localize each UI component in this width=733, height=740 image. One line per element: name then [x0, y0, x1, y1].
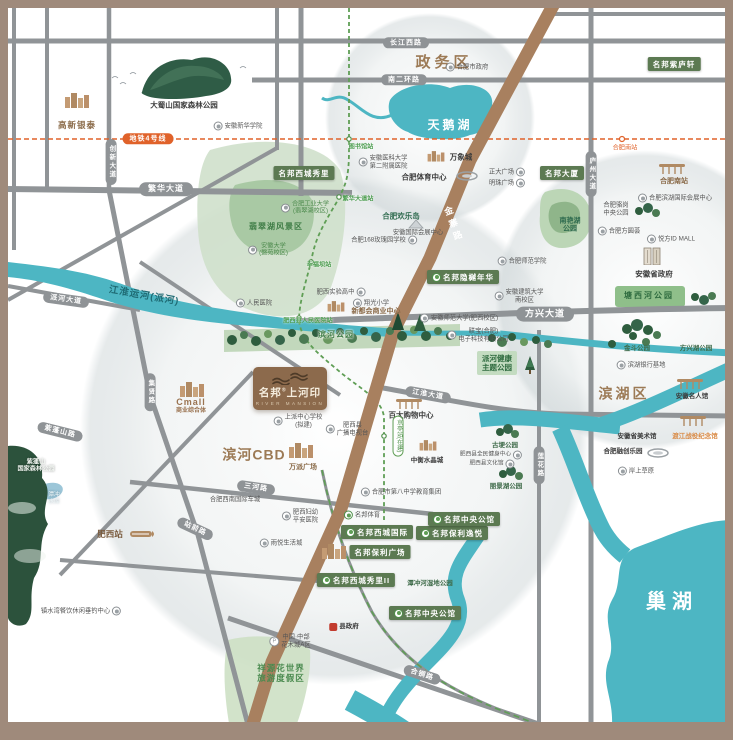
- mingbang-yinyue-nianhua-label: 名邦隐樾年华: [427, 270, 499, 284]
- mixc-icon: [427, 150, 445, 161]
- m-icon: [346, 528, 355, 537]
- chaohu-lake-label: 巢湖: [646, 590, 698, 614]
- p-icon: [446, 63, 455, 72]
- p-icon: [214, 122, 223, 131]
- hfut-label: 合肥工业大学(翡翠湖校区): [281, 201, 329, 216]
- m-icon: [433, 515, 442, 524]
- lianbao-lenovo-label: 联宝(合肥)电子科技有限公司: [447, 327, 508, 342]
- mingbang-mansion-label: 名邦大厦: [540, 166, 584, 180]
- m-icon: [344, 511, 353, 520]
- health-park-tree-icon: [524, 356, 536, 374]
- mingbang-xicheng-intl-label: 名邦西城国际: [341, 525, 413, 539]
- feixi-tv-station-label: 肥西县广播电视台: [326, 421, 368, 436]
- anhui-art-museum-label: 安徽省美术馆: [618, 433, 657, 441]
- p-icon: [420, 314, 429, 323]
- m-icon: [394, 609, 403, 618]
- tanchong-wetland-park-label: 潭冲河湿地公园: [407, 580, 453, 588]
- hefei-sports-center-label: 合肥体育中心: [402, 173, 447, 182]
- p-icon: [498, 257, 507, 266]
- fanhua-avenue-station-label: 繁华大道站: [343, 195, 374, 202]
- crystal-city-towers-icon: [419, 439, 437, 450]
- p-icon: [506, 460, 515, 469]
- project-name-en: RIVER MANSION: [256, 401, 325, 406]
- feicui-lake-scenic-label: 翡翠湖风景区: [249, 222, 303, 232]
- p-icon: [326, 425, 335, 434]
- luogang-central-park-label: 合肥骆岗中央公园: [603, 201, 628, 216]
- anhui-normal-univ-label: 安徽师范大学(肥西校区): [420, 314, 498, 323]
- p-icon: [236, 299, 245, 308]
- hetong-road-pill: 合铜路: [402, 664, 442, 687]
- mingzhu-plaza-label: 明珠广场: [489, 179, 525, 188]
- p-icon: [647, 235, 656, 244]
- paihe-health-park-label: 派河健康主题公园: [477, 351, 517, 375]
- anshang-caoyuan-label: 岸上草原: [618, 467, 654, 476]
- p-icon: [260, 539, 269, 548]
- celebrity-hall-pavilion-icon: [676, 378, 704, 390]
- xiangyuan-flower-world-label: 祥源花世界旅游度假区: [257, 663, 305, 683]
- p-icon: [112, 607, 121, 616]
- swan-lake-label: 天鹅湖: [427, 118, 472, 132]
- zhenshuiwan-label: 镇水湾餐饮休闲垂钓中心: [41, 607, 121, 616]
- china-flower-city-label: 中国·中部花木城A区: [269, 633, 310, 648]
- p-icon: [516, 179, 525, 188]
- xingfuba-station-label: 幸福坝站: [307, 261, 332, 268]
- hefei-168-rose-school-label: 合肥168玫瑰园学校: [351, 236, 417, 245]
- labels-layer: 高新银泰大蜀山国家森林公园安徽新华学院地铁4号线繁华大道创新大道名邦西城秀里长江…: [0, 0, 733, 740]
- binhu-bank-base-label: 滨湖银行基地: [617, 361, 666, 370]
- wanpai-buildings-icon: [288, 442, 314, 458]
- nanyanhu-park-label: 南艳湖公园: [560, 218, 581, 235]
- cmall-buildings-icon: [179, 381, 205, 397]
- idmall-label: 悦方ID MALL: [647, 235, 695, 244]
- hefei-south-railway-icon: [658, 163, 686, 175]
- dashushan-forest-label: 大蜀山国家森林公园: [150, 101, 218, 110]
- xinduhui-commercial-label: 新都会商业中心: [352, 308, 401, 316]
- cmall-label: Cmall商业综合体: [176, 397, 206, 415]
- p-icon: [274, 417, 283, 426]
- luzhou-avenue-pill: 庐州大道: [586, 151, 597, 197]
- fangxinghu-park-label: 方兴湖公园: [680, 345, 713, 353]
- tanchong-reservoir-label: 潭冲水库: [48, 492, 60, 506]
- dujiang-memorial-label: 渡江战役纪念馆: [672, 433, 718, 441]
- jindou-park-label: 金斗公园: [624, 345, 650, 353]
- anhui-gov-building-icon: [642, 247, 662, 265]
- xiangguang-primary-label: 翔光小学: [353, 299, 389, 308]
- wanpai-plaza-label: 万派广场: [289, 464, 317, 472]
- lijinghu-park-label: 丽景湖公园: [490, 483, 523, 491]
- p-icon: [447, 331, 456, 340]
- feixi-culture-hall-label: 肥西县文化馆: [469, 460, 514, 469]
- expo-tent-icon: [408, 219, 424, 229]
- feixi-fitness-center-label: 肥西县全民健身中心: [460, 451, 522, 460]
- jinzhai-road-label: 金寨路: [441, 205, 464, 245]
- tangxihe-park-label: 塘西河公园: [624, 291, 674, 301]
- hefei-city-gov-label: 合肥市政府: [446, 63, 488, 72]
- mingbang-sports-label: 名邦体育: [344, 511, 380, 520]
- hefei-normal-college-label: 合肥师范学院: [498, 257, 547, 266]
- baoli-plaza-buildings-icon: [321, 543, 347, 559]
- anhui-xinhua-college-label: 安徽新华学院: [214, 122, 263, 131]
- p-icon: [408, 236, 417, 245]
- feixi-experimental-hs-label: 肥西实验高中: [317, 288, 366, 297]
- gaoxin-intime-icon: [64, 92, 90, 108]
- gugeng-park-label: 古埂公园: [492, 442, 518, 450]
- p-icon: [282, 512, 291, 521]
- zhanqian-road-pill: 站前路: [175, 516, 214, 542]
- waves-icon: [270, 372, 310, 385]
- frame-bottom: [0, 722, 733, 740]
- anhui-university-label: 安徽大学(磬苑校区): [248, 243, 288, 258]
- mingbang-central-mansion-south-label: 名邦中央公馆: [389, 606, 461, 620]
- binhu-expo-center-label: 合肥滨湖国际会展中心: [638, 194, 712, 203]
- hefei-no8-school-label: 合肥市第八中学教育集团: [361, 488, 441, 497]
- project-logo: 名邦®上河印 RIVER MANSION: [253, 367, 327, 410]
- anhui-prov-gov-label: 安徽省政府: [635, 270, 673, 279]
- hefei-south-metro-station-label: 合肥南站: [613, 144, 638, 151]
- hefei-sw-auto-city-label: 合肥西南国际车城: [210, 496, 260, 504]
- p-icon: [638, 194, 647, 203]
- p-icon: [513, 451, 522, 460]
- feixi-maternity-hospital-label: 肥西妇幼平安医院: [282, 508, 318, 523]
- p-icon: [617, 361, 626, 370]
- p-icon: [353, 299, 362, 308]
- p-icon: [495, 292, 504, 301]
- project-name-cn: 名邦®上河印: [259, 385, 321, 400]
- p-icon: [359, 158, 368, 167]
- zhengda-plaza-label: 正大广场: [489, 168, 525, 177]
- gaoxin-intime-label: 高新银泰: [58, 120, 96, 130]
- hefei-sunac-park-label: 合肥融创乐园: [604, 448, 643, 456]
- mixc-label: 万象城: [450, 153, 473, 162]
- mingbang-baoli-yiyue-label: 名邦保利逸悦: [416, 526, 488, 540]
- jianghuai-canal-label: 江淮运河(派河): [108, 284, 180, 308]
- hefei-south-railway-label: 合肥南站: [660, 178, 688, 186]
- anhui-celebrity-hall-label: 安徽名人馆: [676, 393, 709, 401]
- feixi-station-label: 肥西站: [97, 529, 123, 539]
- fangyuanhui-label: 合肥方圆荟: [598, 227, 640, 236]
- fangxing-avenue-pill: 方兴大道: [516, 307, 574, 322]
- baida-mall-icon: [395, 398, 423, 410]
- anhui-jianzhu-univ-label: 安徽建筑大学南校区: [495, 288, 544, 303]
- pk-icon: [269, 636, 279, 646]
- binhe-park-label: 滨河公园: [318, 330, 354, 340]
- p-icon: [618, 467, 627, 476]
- anyida-no2-hospital-label: 安徽医科大学第二附属医院: [359, 154, 408, 169]
- zipengshan-forest-label: 紫蓬山国家森林公园: [17, 459, 54, 474]
- p-icon: [516, 168, 525, 177]
- mingbang-xicheng-xiuli-label: 名邦西城秀里: [274, 166, 335, 180]
- sanhe-road-pill: 三河路: [236, 480, 275, 497]
- zipengshan-road-pill: 紫蓬山路: [36, 421, 83, 443]
- location-map: 高新银泰大蜀山国家森林公园安徽新华学院地铁4号线繁华大道创新大道名邦西城秀里长江…: [0, 0, 733, 740]
- fanhua-avenue-pill: 繁华大道: [139, 182, 193, 196]
- p-icon: [356, 288, 365, 297]
- frame-left: [0, 0, 8, 740]
- mingbang-central-mansion-north-label: 名邦中央公馆: [428, 512, 500, 526]
- zhongheng-crystal-city-label: 中衡水晶城: [411, 457, 444, 465]
- xinduhui-buildings-icon: [327, 300, 345, 311]
- county-gov-label: 县政府: [329, 623, 359, 631]
- library-station-label: 图书馆站: [349, 143, 374, 150]
- sunac-stadium-icon: [646, 448, 670, 459]
- p-icon: [598, 227, 607, 236]
- m-icon: [421, 529, 430, 538]
- binhu-district-label: 滨湖区: [599, 386, 650, 403]
- sports-center-stadium-icon: [455, 171, 479, 182]
- mingbang-xicheng-xiuli2-label: 名邦西城秀里II: [317, 573, 395, 587]
- m-icon: [322, 576, 331, 585]
- m-icon: [432, 273, 441, 282]
- feixi-train-icon: [129, 529, 155, 539]
- south-2nd-ring-pill: 南二环路: [381, 74, 427, 85]
- p-icon: [361, 488, 370, 497]
- p-icon: [281, 204, 290, 213]
- frame-right: [725, 0, 733, 740]
- frame-top: [0, 0, 733, 8]
- peoples-hospital-label: 人民医院: [236, 299, 272, 308]
- gov-icon: [329, 623, 337, 631]
- mingbang-ziluxuan-label: 名邦紫庐轩: [648, 57, 701, 71]
- yuyue-life-city-label: 雨悦生活城: [260, 539, 302, 548]
- metro-line4-pill: 地铁4号线: [123, 133, 174, 144]
- chuangxin-avenue-pill: 创新大道: [106, 139, 117, 185]
- binhe-cbd-label: 滨河CBD: [222, 447, 285, 464]
- p-icon: [248, 246, 257, 255]
- feixi-peoples-hospital-station-label: 肥西县人民医院站: [283, 317, 333, 324]
- shangpai-school-label: 上派中心学校(拟建): [274, 413, 323, 428]
- jixian-road-pill: 集贤路: [145, 373, 156, 411]
- jingting-station-pill: 京亭站(在建): [393, 416, 404, 457]
- lianhua-road-pill: 莲花路: [534, 446, 545, 484]
- paihe-avenue-pill: 派河大道: [42, 291, 89, 309]
- changjiang-west-road-pill: 长江西路: [383, 37, 429, 48]
- mingbang-baoli-plaza-label: 名邦保利广场: [350, 545, 411, 559]
- dujiang-memorial-icon: [679, 415, 707, 427]
